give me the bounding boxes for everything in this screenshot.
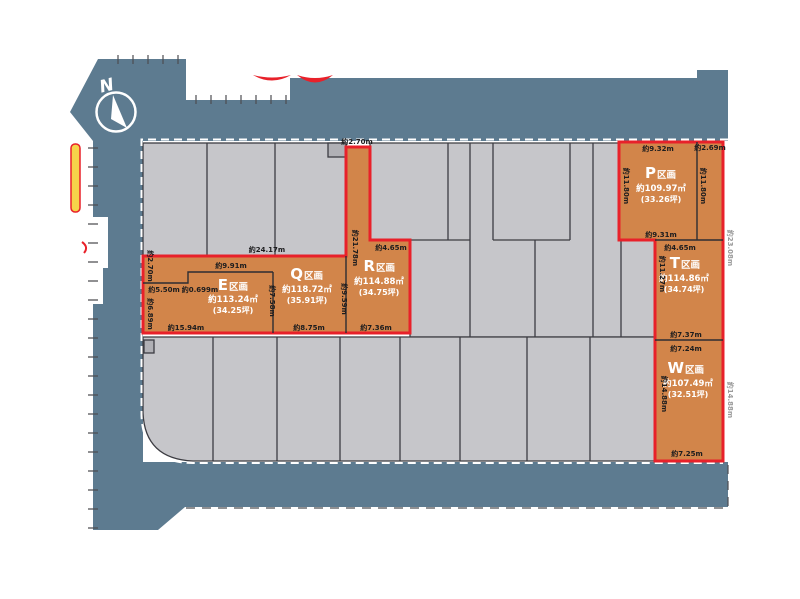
lot-p-suffix: 区画 (657, 170, 676, 181)
dim-t-bottom: 約7.37m (670, 330, 702, 339)
dim-r-top: 約2.70m (341, 137, 373, 146)
dim-q-top: 約24.17m (249, 245, 285, 254)
lot-e-suffix: 区画 (229, 282, 248, 293)
road-notch-lower (86, 267, 103, 304)
dim-r-step: 約4.65m (375, 243, 407, 252)
dim-r-pole-left: 約21.78m (351, 230, 360, 266)
lot-t-suffix: 区画 (681, 260, 700, 271)
dim-p-left: 約11.80m (622, 168, 631, 204)
lot-p-tsubo: (33.26坪) (641, 194, 682, 204)
dim-p-right: 約11.80m (699, 168, 708, 204)
dim-p-top: 約9.32m (642, 144, 674, 153)
dim-t-top: 約4.65m (664, 243, 696, 252)
dim-e-left: 約6.89m (146, 298, 155, 330)
lot-q-tsubo: (35.91坪) (287, 295, 328, 305)
dim-t-right-outside: 約23.08m (726, 230, 735, 266)
lot-q-letter: Q (290, 265, 303, 283)
gray-lot-block-upper-left (143, 143, 346, 256)
yellow-strip-marking (71, 144, 80, 212)
dim-e-step: 約0.699m (182, 285, 218, 294)
lot-e-tsubo: (34.25坪) (213, 305, 254, 315)
lot-w-suffix: 区画 (685, 365, 704, 376)
dim-q-right: 約9.59m (340, 283, 349, 315)
dim-w-bottom: 約7.25m (671, 449, 703, 458)
dim-t-left: 約11.27m (658, 256, 667, 292)
lot-e-letter: E (218, 276, 228, 294)
red-arc-marking-1 (253, 75, 291, 81)
lot-map-canvas: N E 区画 約113.24㎡ (34.25坪) 約9.91m (0, 0, 800, 599)
lot-r-suffix: 区画 (376, 263, 395, 274)
lot-w-tsubo: (32.51坪) (668, 389, 709, 399)
gray-lot-block-lower (143, 337, 655, 461)
dim-p-bottom: 約9.31m (645, 230, 677, 239)
dim-q-bottom: 約8.75m (293, 323, 325, 332)
lot-p-letter: P (645, 164, 656, 182)
red-curve-marking (82, 242, 86, 253)
lot-r-area: 約114.88㎡ (354, 276, 404, 287)
lot-t-letter: T (670, 254, 681, 272)
lot-q-area: 約118.72㎡ (282, 284, 332, 295)
lot-w-letter: W (667, 359, 684, 377)
lot-p-area: 約109.97㎡ (636, 183, 686, 194)
left-boundary-ticks (88, 148, 98, 528)
lot-q-suffix: 区画 (304, 271, 323, 282)
dim-e-top: 約9.91m (215, 261, 247, 270)
lot-e-area: 約113.24㎡ (208, 294, 258, 305)
lot-map: N E 区画 約113.24㎡ (34.25坪) 約9.91m (0, 0, 800, 599)
dim-w-right-outside: 約14.88m (726, 382, 735, 418)
lot-r-tsubo: (34.75坪) (359, 287, 400, 297)
dim-e-left-upper: 約2.70m (146, 250, 155, 282)
dim-e-top-left: 約5.50m (148, 285, 180, 294)
dim-w-top: 約7.24m (670, 344, 702, 353)
gray-lot-notch-lower (144, 340, 154, 353)
lot-w-area: 約107.49㎡ (663, 378, 713, 389)
road-top (70, 59, 728, 141)
lot-t-tsubo: (34.74坪) (664, 284, 705, 294)
dim-e-bottom: 約15.94m (168, 323, 204, 332)
dim-p-top-right: 約2.69m (694, 143, 726, 152)
dim-r-bottom: 約7.36m (360, 323, 392, 332)
dim-w-left: 約14.88m (660, 376, 669, 412)
dim-e-right: 約7.58m (268, 285, 277, 317)
lot-r-letter: R (363, 257, 375, 275)
